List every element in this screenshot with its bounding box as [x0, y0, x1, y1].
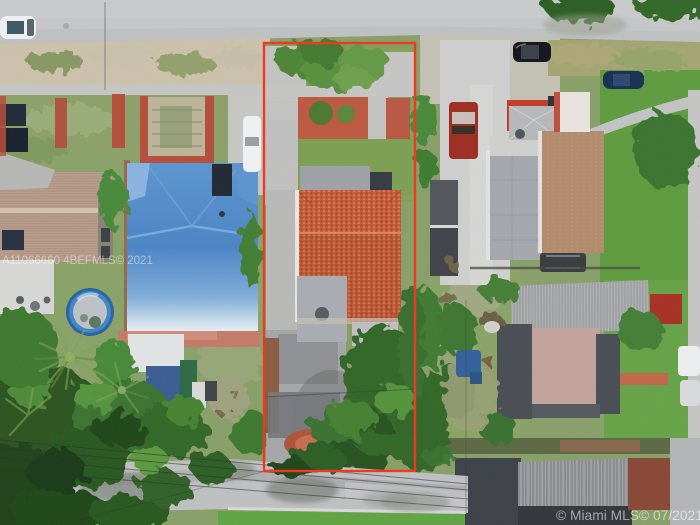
svg-text:A11066660 4BEFMLS© 2021: A11066660 4BEFMLS© 2021: [2, 255, 153, 267]
svg-text:© Miami MLS© 07/2021: © Miami MLS© 07/2021: [556, 508, 700, 523]
